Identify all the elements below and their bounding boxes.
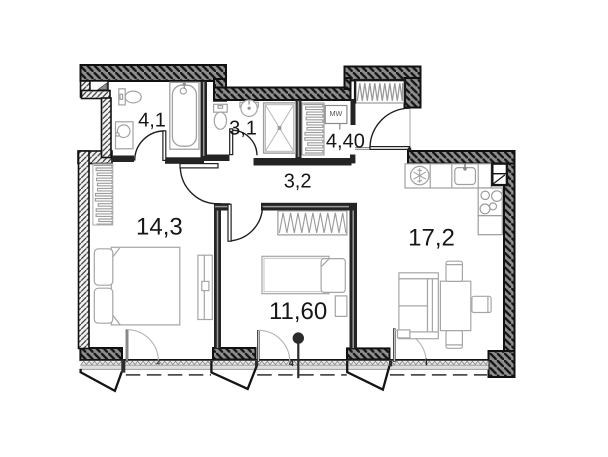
svg-text:MW: MW (330, 109, 343, 118)
svg-text:4,40: 4,40 (326, 130, 365, 152)
svg-text:3,1: 3,1 (229, 118, 257, 140)
svg-text:3,2: 3,2 (284, 170, 312, 192)
svg-text:14,3: 14,3 (136, 213, 183, 240)
svg-text:4,1: 4,1 (138, 110, 166, 132)
svg-text:11,60: 11,60 (269, 298, 327, 325)
svg-text:4: 4 (156, 360, 160, 367)
svg-text:4: 4 (289, 358, 294, 368)
svg-text:17,2: 17,2 (408, 225, 455, 252)
